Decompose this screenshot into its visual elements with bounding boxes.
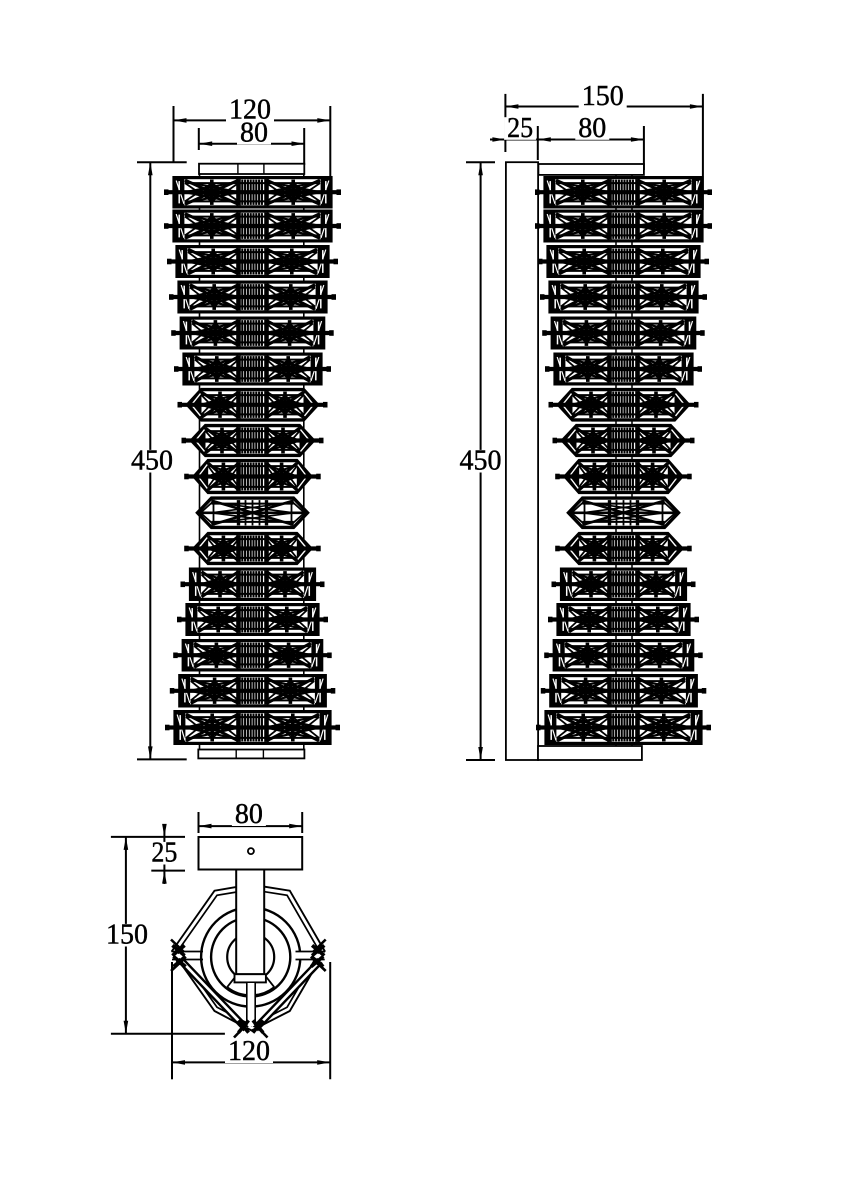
svg-text:450: 450 xyxy=(131,445,173,477)
svg-text:80: 80 xyxy=(235,798,263,830)
svg-text:150: 150 xyxy=(106,919,148,951)
svg-text:80: 80 xyxy=(240,117,268,149)
svg-text:150: 150 xyxy=(582,80,624,112)
svg-text:80: 80 xyxy=(578,112,606,144)
svg-text:450: 450 xyxy=(460,445,502,477)
svg-text:25: 25 xyxy=(151,837,177,869)
svg-text:120: 120 xyxy=(228,1035,270,1067)
svg-text:25: 25 xyxy=(507,112,533,144)
